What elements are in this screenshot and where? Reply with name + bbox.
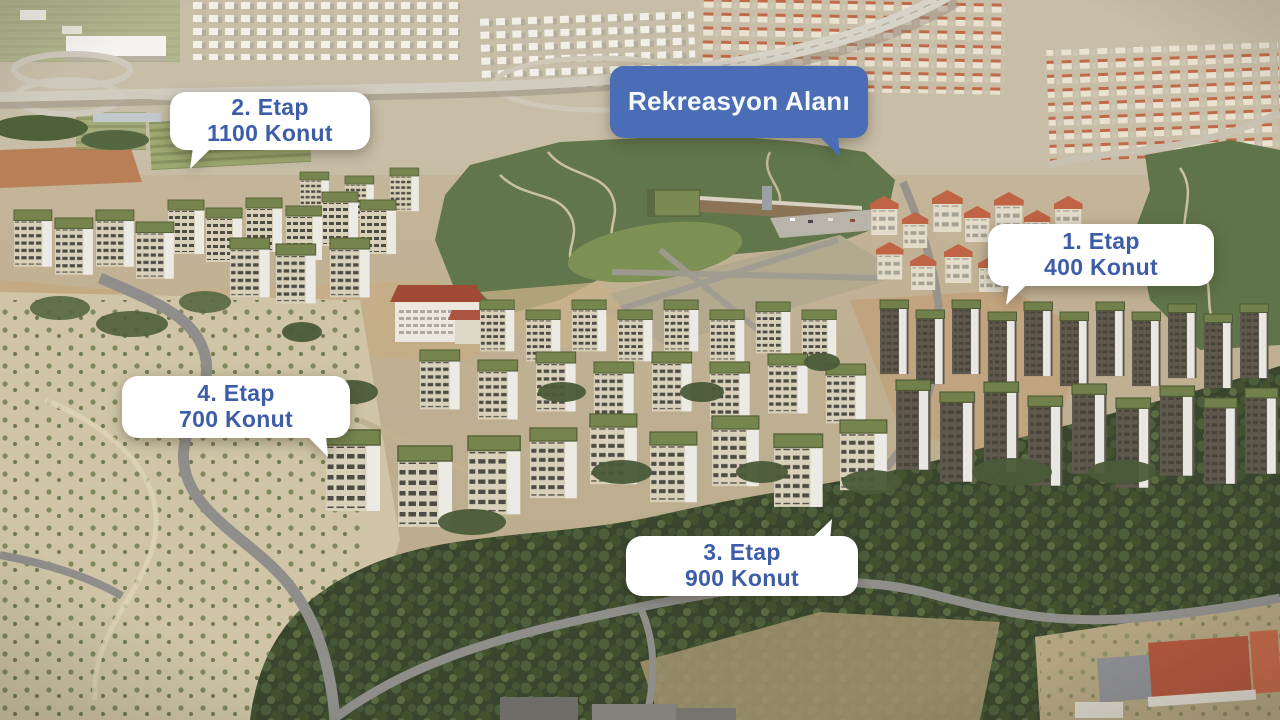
callout-etap-2: 2. Etap 1100 Konut	[170, 92, 370, 150]
callout-etap-4-units: 700 Konut	[179, 407, 293, 433]
callout-etap-3-phase: 3. Etap	[703, 540, 781, 566]
callout-etap-1-units: 400 Konut	[1044, 255, 1158, 281]
callout-etap-4: 4. Etap 700 Konut	[122, 376, 350, 438]
callout-etap-1-phase: 1. Etap	[1062, 229, 1140, 255]
callout-recreation-area: Rekreasyon Alanı	[610, 66, 868, 138]
callout-etap-4-phase: 4. Etap	[197, 381, 275, 407]
callout-etap-1: 1. Etap 400 Konut	[988, 224, 1214, 286]
callout-recreation-area-label: Rekreasyon Alanı	[628, 87, 850, 116]
callout-etap-3: 3. Etap 900 Konut	[626, 536, 858, 596]
callout-etap-3-units: 900 Konut	[685, 566, 799, 592]
aerial-site-render: 2. Etap 1100 Konut Rekreasyon Alanı 1. E…	[0, 0, 1280, 720]
callout-etap-2-phase: 2. Etap	[231, 95, 309, 121]
callout-etap-2-units: 1100 Konut	[207, 121, 333, 147]
